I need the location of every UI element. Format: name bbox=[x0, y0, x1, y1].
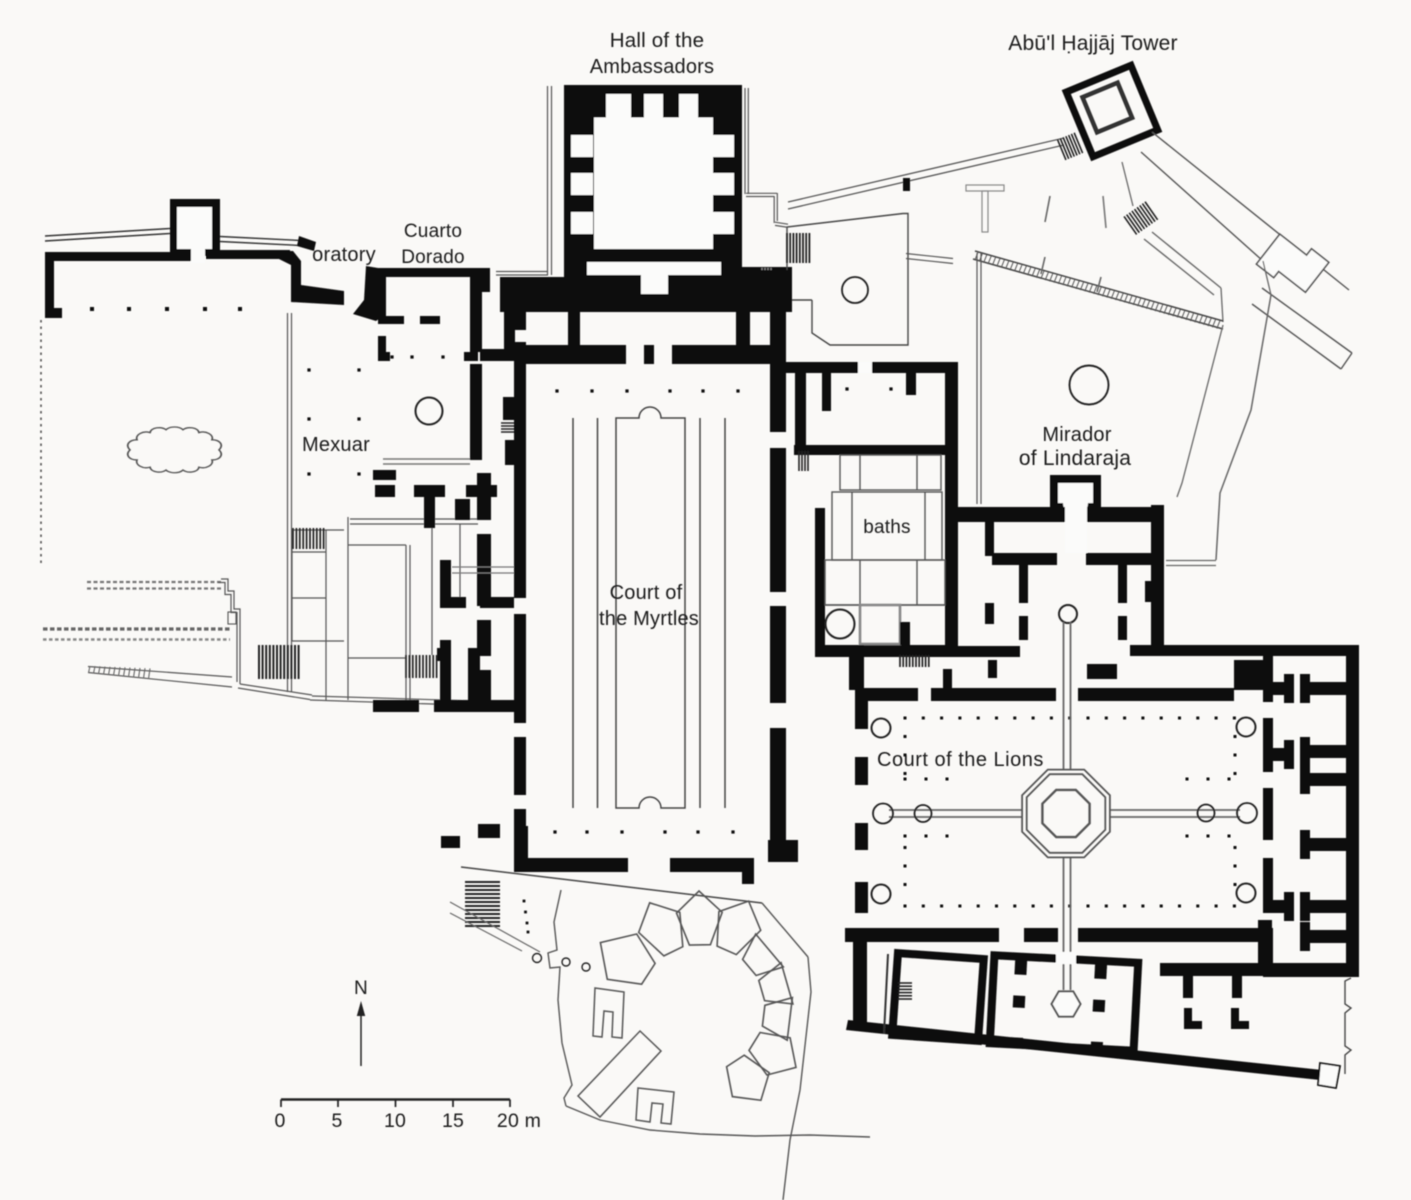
svg-text:oratory: oratory bbox=[312, 244, 376, 266]
svg-text:Ambassadors: Ambassadors bbox=[590, 56, 714, 78]
svg-text:Hall of the: Hall of the bbox=[610, 29, 705, 52]
svg-text:of Lindaraja: of Lindaraja bbox=[1019, 447, 1131, 470]
svg-text:the Myrtles: the Myrtles bbox=[599, 608, 699, 630]
svg-text:N: N bbox=[354, 978, 368, 999]
svg-text:5: 5 bbox=[331, 1110, 342, 1132]
svg-text:Cuarto: Cuarto bbox=[404, 221, 462, 242]
svg-text:Court of the Lions: Court of the Lions bbox=[877, 749, 1044, 771]
svg-text:Mexuar: Mexuar bbox=[302, 434, 370, 456]
svg-text:15: 15 bbox=[442, 1110, 464, 1132]
svg-text:Mirador: Mirador bbox=[1042, 424, 1111, 446]
svg-text:baths: baths bbox=[863, 517, 910, 538]
svg-text:Court of: Court of bbox=[610, 582, 683, 604]
svg-text:0: 0 bbox=[274, 1110, 285, 1132]
svg-text:20 m: 20 m bbox=[497, 1110, 541, 1132]
svg-text:Abū'l Ḥajjāj Tower: Abū'l Ḥajjāj Tower bbox=[1008, 32, 1177, 55]
svg-text:10: 10 bbox=[384, 1110, 406, 1132]
svg-text:Dorado: Dorado bbox=[401, 247, 465, 268]
